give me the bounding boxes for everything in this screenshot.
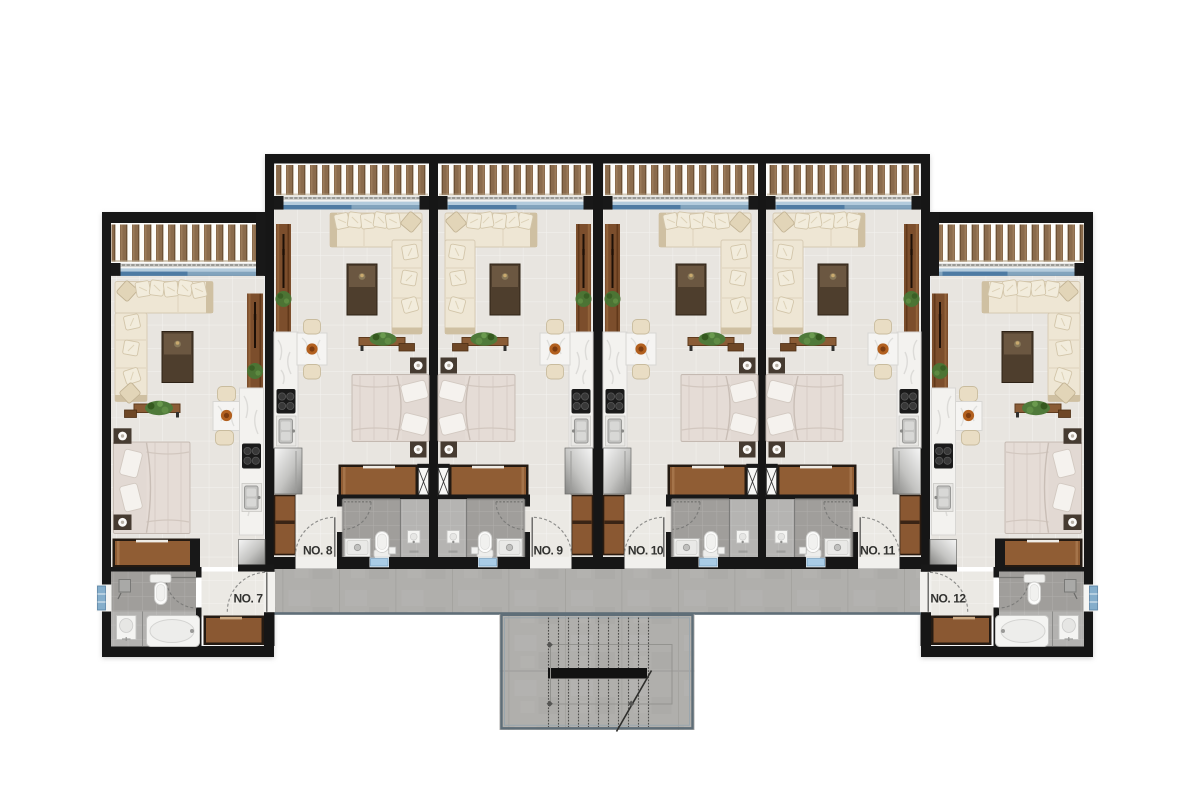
svg-text:NO. 10: NO. 10	[628, 544, 664, 558]
svg-text:NO. 9: NO. 9	[533, 544, 563, 558]
svg-text:NO. 12: NO. 12	[930, 592, 966, 606]
svg-text:NO. 7: NO. 7	[233, 592, 263, 606]
svg-text:NO. 8: NO. 8	[303, 544, 333, 558]
svg-text:NO. 11: NO. 11	[860, 544, 895, 558]
